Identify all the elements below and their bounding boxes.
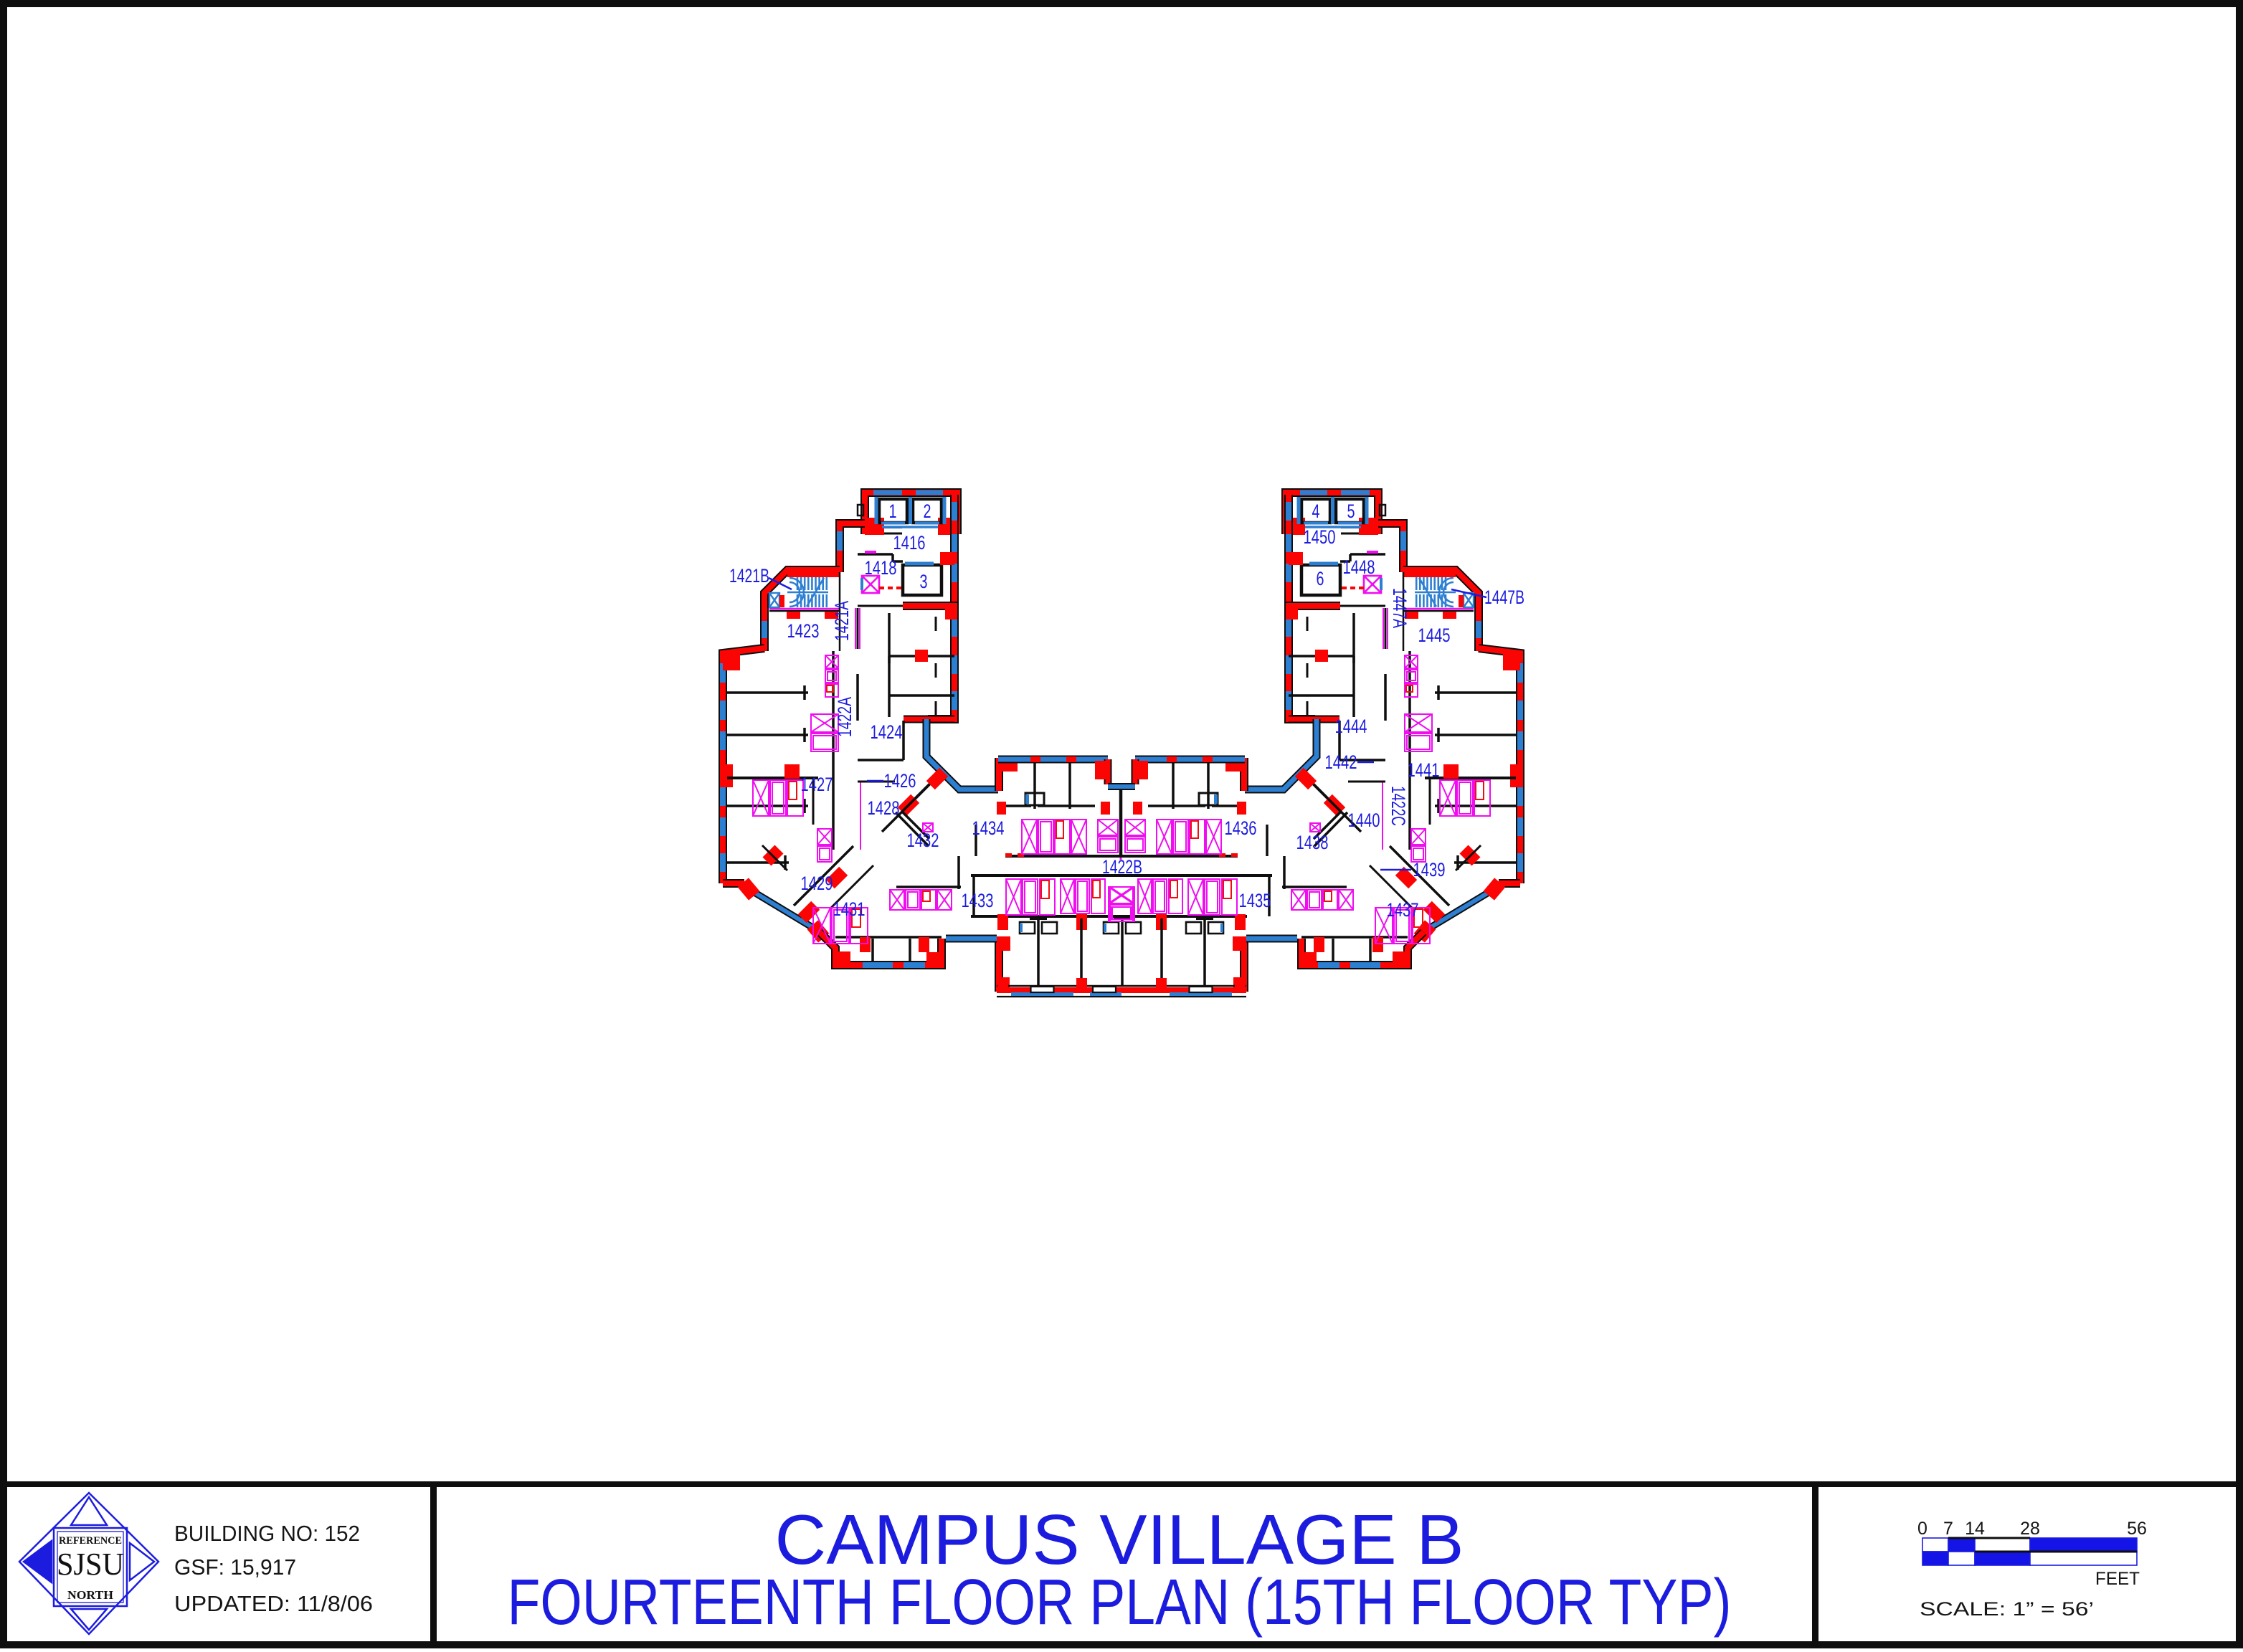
svg-text:1442: 1442 <box>1325 751 1357 773</box>
svg-text:1424: 1424 <box>871 721 903 743</box>
svg-text:5: 5 <box>1347 500 1355 522</box>
svg-text:1422A: 1422A <box>834 697 855 737</box>
svg-text:BUILDING NO: 152: BUILDING NO: 152 <box>174 1521 360 1546</box>
svg-text:1439: 1439 <box>1413 859 1446 880</box>
svg-text:1448: 1448 <box>1343 556 1375 578</box>
svg-text:6: 6 <box>1317 568 1324 589</box>
svg-text:1441: 1441 <box>1408 759 1440 781</box>
svg-text:28: 28 <box>2020 1519 2040 1539</box>
svg-text:UPDATED: 11/8/06: UPDATED: 11/8/06 <box>174 1591 373 1616</box>
svg-text:1421B: 1421B <box>729 565 769 587</box>
svg-text:1447B: 1447B <box>1484 587 1524 608</box>
svg-text:7: 7 <box>1943 1519 1953 1539</box>
svg-text:1428: 1428 <box>868 797 900 819</box>
svg-text:1426: 1426 <box>884 770 916 792</box>
svg-text:1429: 1429 <box>801 873 833 894</box>
svg-text:56: 56 <box>2127 1519 2147 1539</box>
svg-text:1431: 1431 <box>833 898 866 920</box>
svg-text:1433: 1433 <box>962 890 994 911</box>
svg-text:1421A: 1421A <box>831 601 853 641</box>
svg-text:1422C: 1422C <box>1388 786 1409 826</box>
svg-text:1438: 1438 <box>1296 832 1329 853</box>
svg-text:1422B: 1422B <box>1102 856 1142 878</box>
svg-text:2: 2 <box>924 500 931 522</box>
svg-text:1416: 1416 <box>893 532 926 554</box>
svg-text:REFERENCE: REFERENCE <box>59 1535 122 1547</box>
svg-text:0: 0 <box>1917 1519 1927 1539</box>
svg-text:1434: 1434 <box>972 817 1005 839</box>
svg-text:1440: 1440 <box>1348 810 1380 831</box>
svg-text:SCALE: 1” = 56’: SCALE: 1” = 56’ <box>1920 1598 2094 1620</box>
svg-text:1418: 1418 <box>865 557 897 579</box>
svg-text:1437: 1437 <box>1387 899 1419 921</box>
svg-text:1423: 1423 <box>787 620 820 642</box>
svg-text:1444: 1444 <box>1335 716 1367 737</box>
svg-text:1445: 1445 <box>1418 625 1451 646</box>
svg-text:1: 1 <box>889 500 897 522</box>
svg-text:1432: 1432 <box>907 830 939 851</box>
svg-text:GSF: 15,917: GSF: 15,917 <box>174 1554 296 1580</box>
svg-text:3: 3 <box>920 571 928 592</box>
svg-text:FOURTEENTH FLOOR PLAN (15TH FL: FOURTEENTH FLOOR PLAN (15TH FLOOR TYP) <box>508 1567 1732 1638</box>
svg-text:1427: 1427 <box>801 774 833 795</box>
svg-text:NORTH: NORTH <box>67 1588 113 1602</box>
svg-text:1436: 1436 <box>1225 817 1257 839</box>
svg-text:FEET: FEET <box>2095 1569 2140 1589</box>
svg-text:4: 4 <box>1312 500 1320 522</box>
svg-text:1450: 1450 <box>1304 526 1336 548</box>
svg-text:1435: 1435 <box>1239 890 1271 911</box>
svg-text:14: 14 <box>1965 1519 1985 1539</box>
svg-text:1447A: 1447A <box>1389 588 1410 628</box>
svg-text:SJSU: SJSU <box>57 1547 124 1582</box>
